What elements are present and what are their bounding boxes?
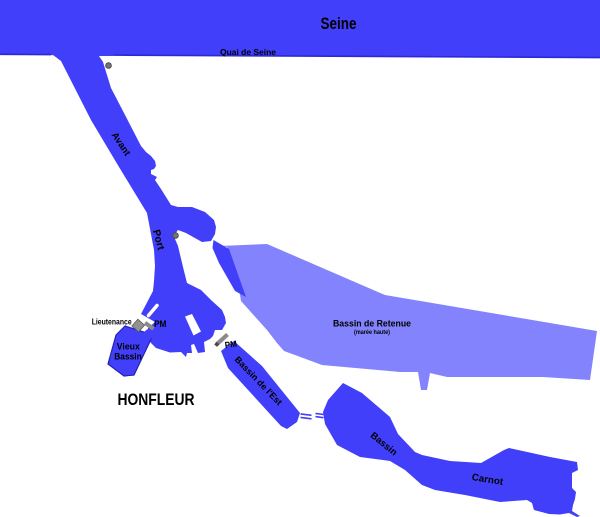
svg-text:Lieutenance: Lieutenance — [92, 316, 132, 326]
svg-text:Seine: Seine — [321, 15, 357, 33]
svg-text:PM: PM — [154, 319, 167, 329]
svg-text:PM: PM — [224, 339, 237, 351]
svg-text:Bassin: Bassin — [114, 352, 142, 363]
svg-text:Bassin de Retenue: Bassin de Retenue — [333, 319, 411, 329]
svg-text:Quai de Seine: Quai de Seine — [220, 47, 276, 57]
svg-text:HONFLEUR: HONFLEUR — [118, 390, 195, 409]
svg-text:(marée haute): (marée haute) — [354, 329, 390, 336]
